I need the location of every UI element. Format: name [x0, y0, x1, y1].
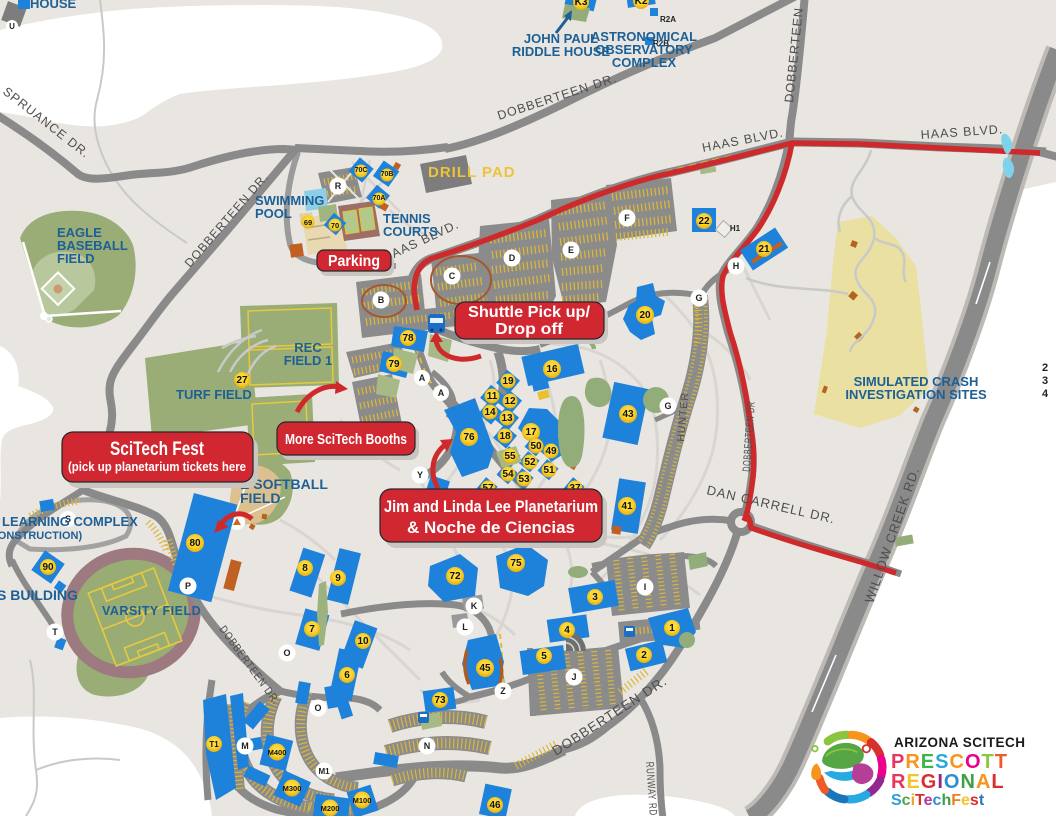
svg-text:46: 46 [489, 800, 501, 811]
svg-text:13: 13 [501, 413, 513, 424]
svg-text:Drop off: Drop off [495, 321, 564, 338]
svg-text:14: 14 [484, 407, 496, 418]
svg-text:Parking: Parking [328, 253, 380, 270]
svg-text:REGIONAL: REGIONAL [891, 771, 1005, 793]
svg-text:M200: M200 [321, 804, 340, 813]
svg-text:69: 69 [304, 218, 312, 227]
svg-text:9: 9 [335, 573, 341, 584]
svg-text:43: 43 [622, 409, 634, 420]
svg-text:(pick up planetarium tickets h: (pick up planetarium tickets here [68, 460, 246, 474]
svg-text:B: B [378, 295, 385, 305]
svg-text:E: E [568, 245, 574, 255]
svg-text:78: 78 [402, 333, 414, 344]
svg-text:M300: M300 [283, 784, 302, 793]
svg-text:2: 2 [1042, 362, 1048, 374]
svg-text:F: F [624, 213, 630, 223]
svg-text:27: 27 [236, 375, 248, 386]
svg-text:More SciTech Booths: More SciTech Booths [285, 431, 407, 448]
svg-text:O: O [314, 703, 321, 713]
svg-text:52: 52 [524, 457, 536, 468]
svg-text:1: 1 [669, 623, 675, 634]
svg-text:A: A [438, 388, 445, 398]
svg-text:A: A [419, 373, 426, 383]
svg-text:N: N [424, 741, 431, 751]
svg-text:POOL: POOL [255, 206, 292, 221]
svg-text:TURF FIELD: TURF FIELD [176, 387, 252, 402]
svg-text:M: M [241, 741, 249, 751]
svg-text:J: J [571, 672, 576, 682]
svg-text:FIELD: FIELD [240, 490, 280, 506]
svg-text:& Noche de Ciencias: & Noche de Ciencias [407, 519, 575, 537]
svg-text:G: G [695, 293, 702, 303]
svg-text:72: 72 [449, 571, 461, 582]
svg-text:50: 50 [530, 441, 542, 452]
svg-text:41: 41 [621, 501, 633, 512]
svg-text:80: 80 [189, 538, 201, 549]
svg-text:79: 79 [388, 359, 400, 370]
svg-text:70C: 70C [355, 167, 368, 174]
svg-text:73: 73 [434, 695, 446, 706]
svg-text:75: 75 [510, 558, 522, 569]
svg-text:18: 18 [499, 431, 511, 442]
svg-text:11: 11 [487, 391, 498, 402]
svg-text:M1: M1 [318, 767, 330, 776]
svg-text:U: U [9, 22, 15, 31]
svg-text:5: 5 [541, 651, 547, 662]
svg-text:SciTechFest: SciTechFest [891, 792, 985, 809]
svg-text:22: 22 [698, 216, 710, 227]
svg-text:10: 10 [357, 636, 369, 647]
svg-text:16: 16 [546, 364, 558, 375]
svg-text:3: 3 [592, 592, 598, 603]
svg-text:T: T [52, 627, 58, 637]
svg-text:K2: K2 [635, 0, 648, 7]
svg-text:L: L [462, 622, 468, 632]
svg-text:12: 12 [504, 396, 516, 407]
svg-text:19: 19 [502, 376, 514, 387]
svg-text:Z: Z [500, 686, 506, 696]
svg-text:P: P [185, 581, 191, 591]
svg-text:ARIZONA SCITECH: ARIZONA SCITECH [894, 735, 1026, 750]
svg-text:70: 70 [331, 221, 339, 230]
svg-text:LEARNING COMPLEX: LEARNING COMPLEX [2, 514, 138, 529]
svg-text:51: 51 [543, 465, 555, 476]
svg-text:4: 4 [1042, 388, 1049, 400]
svg-text:6: 6 [344, 670, 350, 681]
svg-text:H1: H1 [730, 224, 741, 233]
svg-text:90: 90 [42, 562, 54, 573]
svg-text:Y: Y [417, 470, 423, 480]
svg-text:I: I [644, 582, 647, 592]
svg-text:HOUSE: HOUSE [30, 0, 77, 11]
svg-text:C: C [449, 271, 456, 281]
svg-text:20: 20 [639, 310, 651, 321]
svg-text:VARSITY FIELD: VARSITY FIELD [102, 604, 201, 618]
svg-text:FIELD: FIELD [57, 251, 95, 266]
svg-text:8: 8 [302, 563, 308, 574]
svg-text:4: 4 [564, 625, 570, 636]
svg-text:R: R [335, 181, 342, 191]
svg-text:G: G [664, 401, 671, 411]
svg-text:DRILL PAD: DRILL PAD [428, 164, 516, 181]
svg-text:3: 3 [1042, 375, 1048, 387]
svg-text:O: O [283, 648, 290, 658]
svg-text:PRESCOTT: PRESCOTT [891, 751, 1008, 773]
svg-text:Shuttle Pick up/: Shuttle Pick up/ [468, 304, 591, 321]
svg-text:D: D [509, 253, 516, 263]
svg-text:T1: T1 [209, 740, 219, 749]
svg-text:17: 17 [525, 427, 537, 438]
svg-text:(UNDER CONSTRUCTION): (UNDER CONSTRUCTION) [0, 530, 82, 542]
svg-text:R2A: R2A [660, 15, 676, 24]
svg-text:53: 53 [518, 474, 530, 485]
svg-text:7: 7 [309, 624, 315, 635]
svg-text:55: 55 [504, 451, 516, 462]
svg-text:K3: K3 [575, 0, 588, 8]
svg-text:Jim and Linda Lee Planetarium: Jim and Linda Lee Planetarium [384, 498, 598, 516]
svg-text:INVESTIGATION SITES: INVESTIGATION SITES [845, 387, 987, 402]
svg-text:FIELD 1: FIELD 1 [284, 353, 332, 368]
svg-text:76: 76 [463, 432, 475, 443]
svg-text:49: 49 [545, 446, 557, 457]
svg-text:2: 2 [641, 650, 647, 661]
svg-text:45: 45 [479, 663, 491, 674]
svg-text:S BUILDING: S BUILDING [0, 587, 78, 603]
svg-text:M400: M400 [268, 748, 287, 757]
svg-text:21: 21 [758, 244, 770, 255]
svg-text:70A: 70A [373, 195, 386, 202]
svg-text:M100: M100 [353, 796, 372, 805]
svg-text:54: 54 [502, 469, 514, 480]
svg-text:H: H [733, 261, 740, 271]
svg-text:70B: 70B [381, 171, 394, 178]
svg-text:K: K [471, 601, 478, 611]
svg-text:COMPLEX: COMPLEX [612, 55, 677, 70]
svg-text:SciTech Fest: SciTech Fest [110, 439, 205, 460]
